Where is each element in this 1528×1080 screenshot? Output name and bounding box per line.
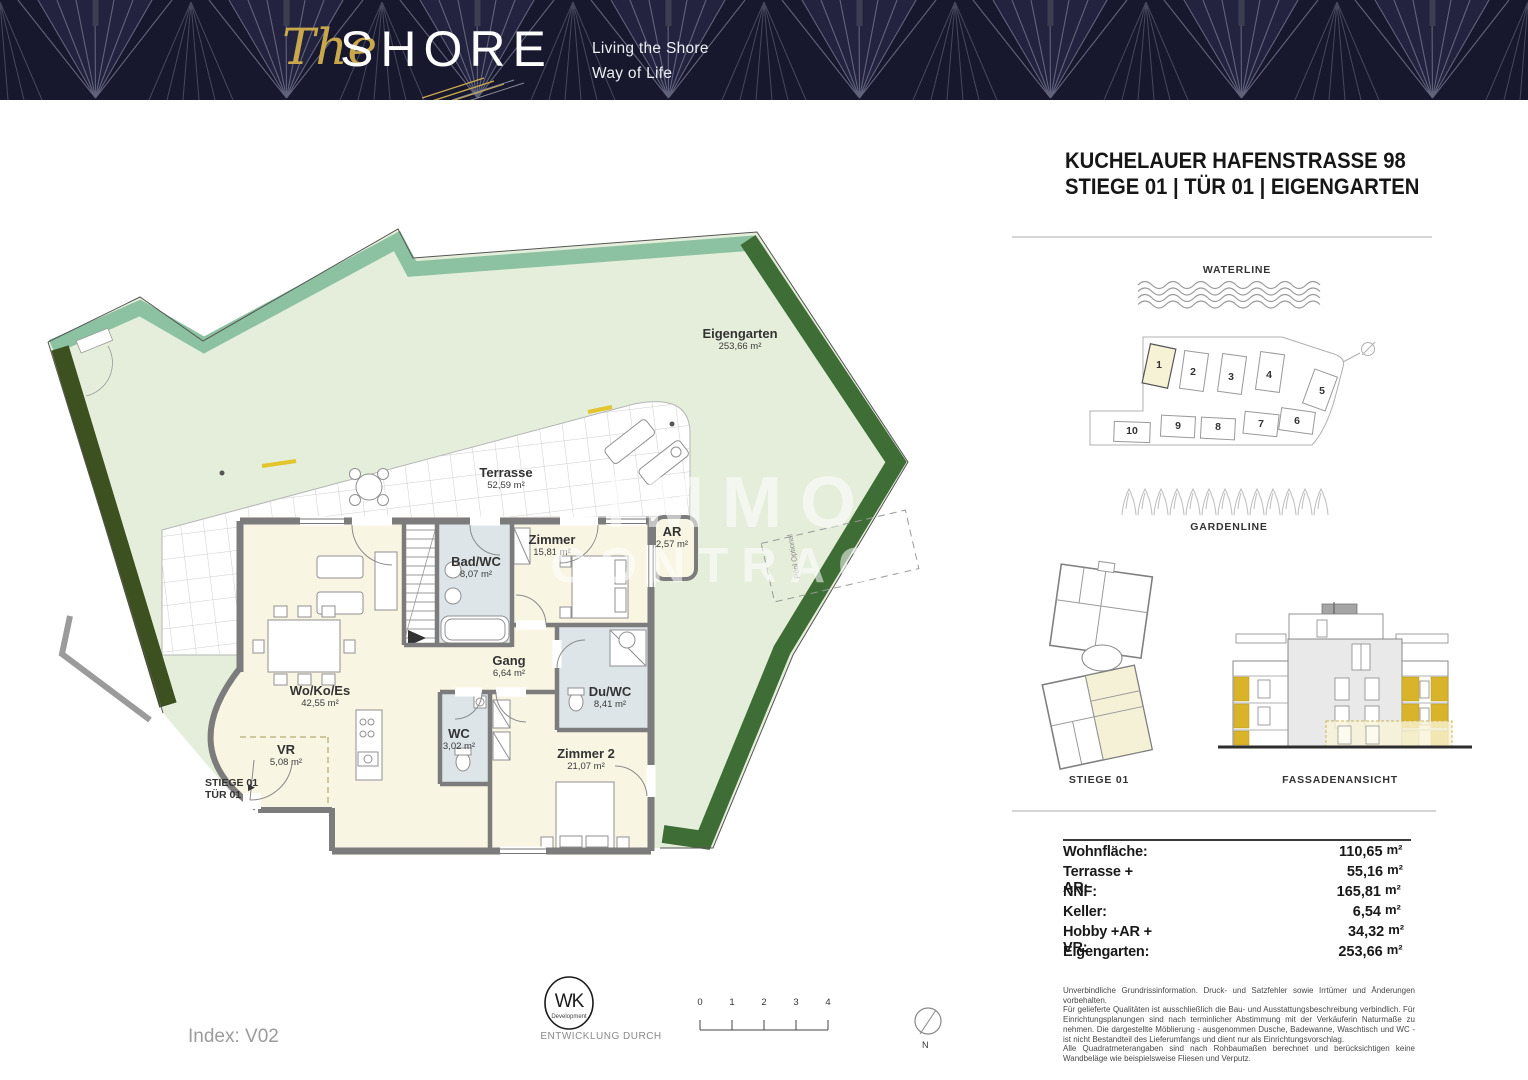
wk-development-logo: WK Development [538,972,600,1034]
building-number: 6 [1285,415,1309,427]
building-number: 9 [1166,420,1190,432]
entrance-arrow-icon: ▶ [248,782,255,793]
title-address: KUCHELAUER HAFENSTRASSE 98 [1065,148,1419,174]
north-arrow-icon [908,1002,952,1042]
artdeco-pattern-icon [0,0,1528,100]
building-number: 5 [1310,385,1334,397]
building-number: 2 [1181,366,1205,378]
terrace-dot-1 [220,471,225,476]
svg-text:WK: WK [555,991,585,1012]
index-label: Index: V02 [188,1026,279,1048]
table-row: Keller: 6,54 m² [1063,904,1411,924]
disclaimer: Unverbindliche Grundrissinformation. Dru… [1063,986,1415,1064]
floor-plan: Pool Optional [30,222,970,968]
brand-banner: The SHORE Living the Shore Way of Life [0,0,1528,100]
tagline-line2: Way of Life [592,61,709,86]
table-row: Hobby +AR + VR: 34,32 m² [1063,924,1411,944]
building-number: 7 [1249,418,1273,430]
building-number: 1 [1147,359,1171,371]
key-plan-label: STIEGE 01 [989,774,1209,786]
logo-main: SHORE [340,24,553,74]
terrace-dot-2 [670,422,675,427]
building-number: 3 [1219,371,1243,383]
section-divider [1012,810,1436,812]
scale-bar-icon [690,1016,840,1036]
tagline-line1: Living the Shore [592,36,709,61]
gardenline-grass-icon [1122,489,1328,515]
table-row: Terrasse + AR: 55,16 m² [1063,864,1411,884]
waterline-label: WATERLINE [1127,264,1347,276]
page-title: KUCHELAUER HAFENSTRASSE 98 STIEGE 01 | T… [1065,148,1450,200]
building-number: 4 [1257,369,1281,381]
site-access [1343,342,1375,362]
entwicklung-label: ENTWICKLUNG DURCH [501,1031,701,1042]
area-table: Wohnfläche: 110,65 m² Terrasse + AR: 55,… [1063,839,1411,964]
floorplan-page: The SHORE Living the Shore Way of Life K… [0,0,1528,1080]
waterline-waves-icon [1138,282,1320,309]
header-divider [1012,236,1432,238]
building-number: 8 [1206,421,1230,433]
table-row: Eigengarten: 253,66 m² [1063,944,1411,964]
storage-room [654,517,696,579]
building-number: 10 [1120,425,1144,437]
table-row: Wohnfläche: 110,65 m² [1063,844,1411,864]
svg-text:Development: Development [551,1014,587,1020]
facade-elevation [1218,602,1472,747]
title-unit: STIEGE 01 | TÜR 01 | EIGENGARTEN [1065,174,1419,200]
gardenline-label: GARDENLINE [1119,521,1339,533]
north-label: N [922,1040,929,1050]
facade-label: FASSADENANSICHT [1230,774,1450,786]
logo-hatch-icon [418,70,528,100]
unit-key-plan [1042,556,1153,769]
